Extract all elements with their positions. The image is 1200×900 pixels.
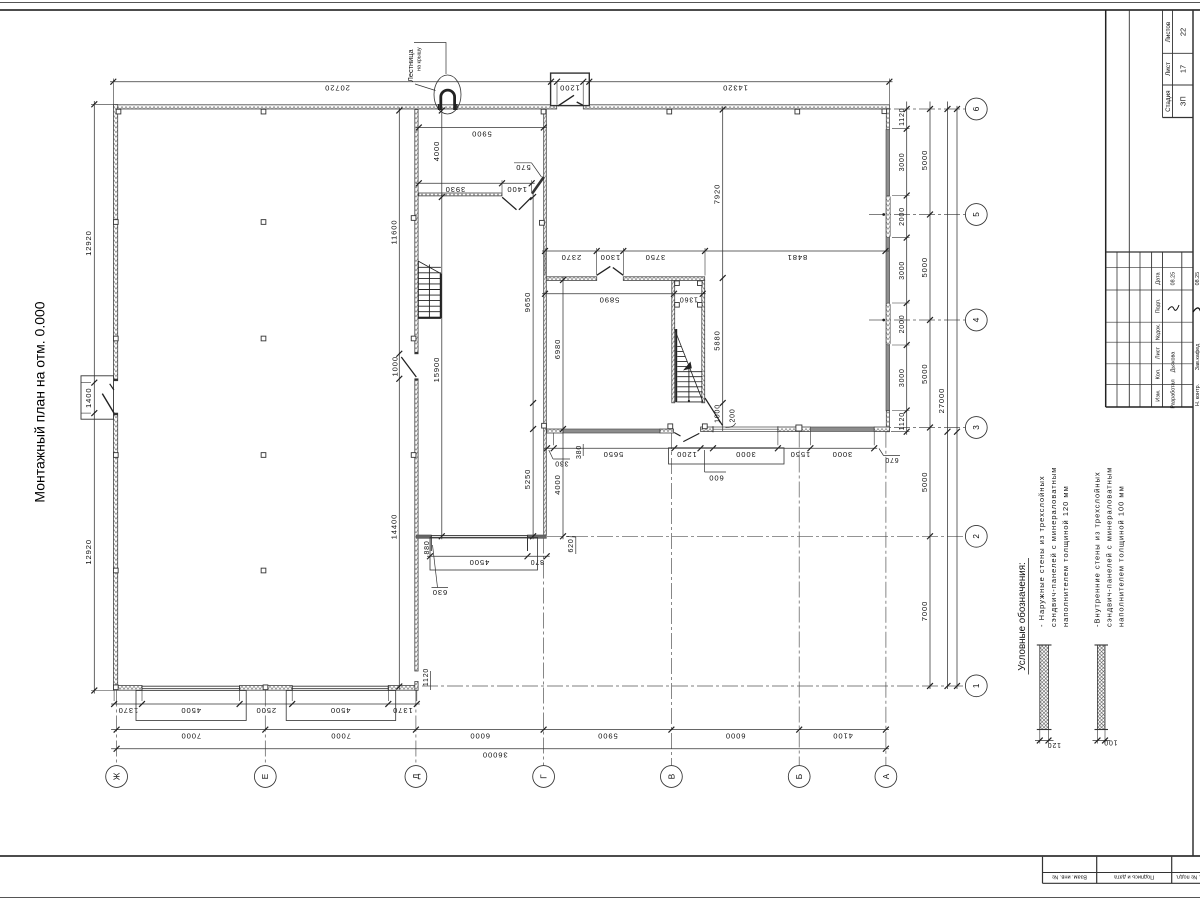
svg-text:08.25: 08.25: [1195, 272, 1200, 286]
svg-text:3750: 3750: [645, 253, 666, 262]
svg-text:15900: 15900: [432, 357, 441, 383]
svg-text:Ж: Ж: [113, 772, 122, 780]
svg-text:12920: 12920: [84, 539, 93, 565]
svg-text:Стадия: Стадия: [1165, 90, 1172, 111]
svg-text:100: 100: [1103, 739, 1117, 746]
svg-text:600: 600: [708, 474, 723, 483]
svg-text:4100: 4100: [832, 732, 853, 741]
svg-text:Лист: Лист: [1165, 62, 1172, 76]
svg-text:Г: Г: [540, 774, 549, 779]
svg-text:Е: Е: [261, 773, 270, 779]
svg-text:7000: 7000: [920, 601, 929, 622]
svg-text:14320: 14320: [722, 84, 748, 93]
svg-text:2370: 2370: [561, 253, 582, 262]
svg-text:сэндвич-панелей с минераловатн: сэндвич-панелей с минераловатным: [1105, 467, 1114, 627]
svg-text:Б: Б: [795, 774, 804, 779]
svg-text:Взам. инв. №: Взам. инв. №: [1052, 874, 1087, 880]
svg-text:Разработал: Разработал: [1171, 379, 1177, 408]
svg-text:5000: 5000: [920, 472, 929, 493]
svg-text:20720: 20720: [324, 84, 350, 93]
svg-text:670: 670: [885, 456, 899, 463]
svg-text:5: 5: [972, 212, 981, 217]
svg-text:7000: 7000: [181, 732, 202, 741]
svg-text:5250: 5250: [523, 469, 532, 490]
svg-text:-Внутренние стены из трехслойн: -Внутренние стены из трехслойных: [1093, 471, 1102, 627]
svg-text:14400: 14400: [389, 514, 398, 540]
svg-text:330: 330: [554, 459, 568, 466]
svg-text:4500: 4500: [181, 706, 202, 715]
svg-text:4000: 4000: [432, 141, 441, 162]
svg-text:200: 200: [729, 408, 736, 422]
svg-text:Кол.: Кол.: [1156, 368, 1162, 380]
svg-text:1000: 1000: [714, 404, 721, 423]
svg-text:наполнителем толщиной 120 мм: наполнителем толщиной 120 мм: [1061, 485, 1070, 627]
svg-text:3000: 3000: [832, 450, 853, 459]
svg-text:6: 6: [972, 106, 981, 111]
svg-text:1400: 1400: [506, 185, 527, 194]
svg-text:630: 630: [432, 588, 447, 597]
svg-text:5650: 5650: [603, 450, 624, 459]
svg-text:22: 22: [1178, 28, 1187, 36]
svg-text:1: 1: [972, 683, 981, 688]
svg-text:Изм.: Изм.: [1156, 389, 1162, 401]
svg-text:3930: 3930: [445, 185, 466, 194]
svg-text:1550: 1550: [790, 450, 811, 459]
svg-text:Лист: Лист: [1156, 346, 1162, 359]
svg-text:1120: 1120: [899, 108, 906, 126]
svg-text:380: 380: [576, 445, 583, 459]
svg-text:620: 620: [568, 538, 575, 552]
svg-text:2500: 2500: [256, 706, 277, 715]
svg-text:ЗП: ЗП: [1178, 96, 1187, 106]
svg-text:36000: 36000: [482, 751, 508, 760]
svg-text:на крышу: на крышу: [416, 47, 422, 71]
svg-text:12920: 12920: [84, 230, 93, 256]
svg-text:Зав.кафед: Зав.кафед: [1195, 343, 1200, 370]
svg-text:1120: 1120: [899, 412, 906, 430]
svg-text:Подп.: Подп.: [1156, 298, 1162, 313]
svg-text:1000: 1000: [391, 356, 400, 377]
svg-text:5880: 5880: [713, 330, 722, 351]
svg-text:1300: 1300: [600, 253, 621, 262]
svg-text:11600: 11600: [389, 219, 398, 244]
svg-text:Монтажный план на отм. 0.000: Монтажный план на отм. 0.000: [31, 301, 47, 502]
svg-text:7000: 7000: [330, 732, 351, 741]
svg-text:Н. контр.: Н. контр.: [1195, 384, 1200, 406]
svg-text:5900: 5900: [471, 129, 492, 138]
svg-text:08.25: 08.25: [1171, 272, 1177, 286]
svg-text:Дьякова: Дьякова: [1171, 352, 1177, 373]
svg-text:1120: 1120: [423, 668, 430, 686]
svg-text:Подпись и дата: Подпись и дата: [1113, 874, 1154, 880]
svg-text:- Наружные стены из трехслойны: - Наружные стены из трехслойных: [1037, 475, 1046, 627]
svg-text:Условные обозначения:: Условные обозначения:: [1017, 562, 1028, 671]
svg-text:3: 3: [972, 425, 981, 430]
svg-text:4: 4: [972, 317, 981, 322]
svg-text:120: 120: [1047, 741, 1061, 748]
svg-text:Лестница: Лестница: [406, 49, 415, 82]
svg-text:6000: 6000: [725, 732, 746, 741]
svg-text:9650: 9650: [523, 292, 532, 313]
svg-text:2: 2: [972, 534, 981, 539]
svg-text:наполнителем толщиной 100 мм: наполнителем толщиной 100 мм: [1117, 485, 1126, 627]
svg-text:Инв. № подл.: Инв. № подл.: [1175, 874, 1200, 880]
svg-text:6000: 6000: [470, 732, 491, 741]
svg-text:2000: 2000: [899, 207, 906, 226]
svg-text:№док.: №док.: [1156, 323, 1162, 340]
svg-text:3000: 3000: [899, 368, 906, 387]
svg-text:870: 870: [530, 558, 544, 565]
svg-text:3000: 3000: [899, 153, 906, 172]
svg-text:5000: 5000: [920, 150, 929, 171]
svg-text:4500: 4500: [469, 558, 490, 567]
svg-text:3000: 3000: [735, 450, 756, 459]
svg-text:В: В: [667, 773, 676, 779]
svg-text:1200: 1200: [559, 84, 580, 93]
svg-text:5000: 5000: [920, 257, 929, 278]
svg-text:7920: 7920: [713, 184, 722, 205]
svg-text:6980: 6980: [553, 339, 562, 360]
svg-text:1370: 1370: [118, 706, 139, 715]
svg-text:5890: 5890: [599, 296, 620, 305]
svg-text:8481: 8481: [787, 253, 808, 262]
svg-text:5000: 5000: [920, 363, 929, 384]
svg-text:4000: 4000: [553, 474, 562, 495]
svg-text:А: А: [882, 773, 891, 779]
svg-text:1400: 1400: [84, 388, 93, 409]
svg-text:5900: 5900: [597, 732, 618, 741]
svg-text:сэндвич-панелей с минераловатн: сэндвич-панелей с минераловатным: [1049, 467, 1058, 627]
svg-text:1200: 1200: [676, 450, 697, 459]
svg-text:1360: 1360: [679, 296, 698, 303]
svg-text:Дата: Дата: [1156, 272, 1162, 285]
svg-text:570: 570: [515, 163, 530, 172]
svg-text:27000: 27000: [937, 388, 946, 414]
svg-text:Листов: Листов: [1165, 21, 1172, 42]
svg-text:Д: Д: [412, 773, 421, 779]
svg-text:17: 17: [1178, 65, 1187, 73]
svg-text:3000: 3000: [899, 261, 906, 280]
svg-text:4500: 4500: [330, 706, 351, 715]
svg-text:2000: 2000: [899, 315, 906, 334]
